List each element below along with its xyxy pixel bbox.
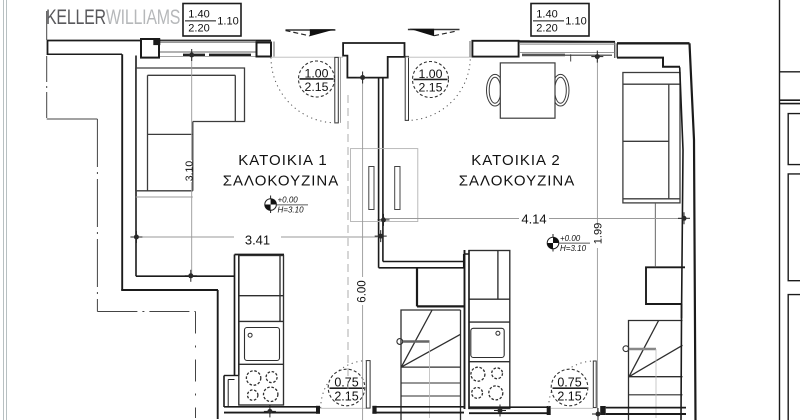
svg-text:1.40: 1.40 <box>536 9 557 21</box>
svg-text:+0.00: +0.00 <box>278 196 299 205</box>
svg-text:H=3.10: H=3.10 <box>278 206 305 215</box>
svg-text:KELLERWILLIAMS: KELLERWILLIAMS <box>46 5 180 29</box>
svg-text:0.75: 0.75 <box>334 375 358 389</box>
svg-text:H=3.10: H=3.10 <box>560 244 587 253</box>
svg-text:6.00: 6.00 <box>357 280 369 302</box>
svg-text:2.15: 2.15 <box>557 390 581 404</box>
svg-text:1.10: 1.10 <box>565 16 586 28</box>
svg-text:ΚΑΤΟΙΚΙΑ 1: ΚΑΤΟΙΚΙΑ 1 <box>238 152 327 169</box>
svg-text:+0.00: +0.00 <box>560 234 581 243</box>
svg-text:ΚΑΤΟΙΚΙΑ 2: ΚΑΤΟΙΚΙΑ 2 <box>471 152 560 169</box>
svg-text:1.10: 1.10 <box>217 16 238 28</box>
svg-text:3.41: 3.41 <box>245 233 270 248</box>
svg-text:2.15: 2.15 <box>419 80 443 94</box>
svg-text:2.15: 2.15 <box>305 80 329 94</box>
svg-text:0.75: 0.75 <box>557 375 581 389</box>
svg-text:ΣΑΛΟΚΟΥΖΙΝΑ: ΣΑΛΟΚΟΥΖΙΝΑ <box>223 173 340 190</box>
svg-text:2.20: 2.20 <box>188 23 209 35</box>
svg-text:ΣΑΛΟΚΟΥΖΙΝΑ: ΣΑΛΟΚΟΥΖΙΝΑ <box>459 173 576 190</box>
svg-text:2.20: 2.20 <box>536 23 557 35</box>
svg-text:1.40: 1.40 <box>188 9 209 21</box>
svg-text:1.99: 1.99 <box>593 223 605 244</box>
svg-text:2.15: 2.15 <box>334 390 358 404</box>
svg-text:4.14: 4.14 <box>521 212 546 227</box>
svg-text:3.10: 3.10 <box>184 161 196 182</box>
